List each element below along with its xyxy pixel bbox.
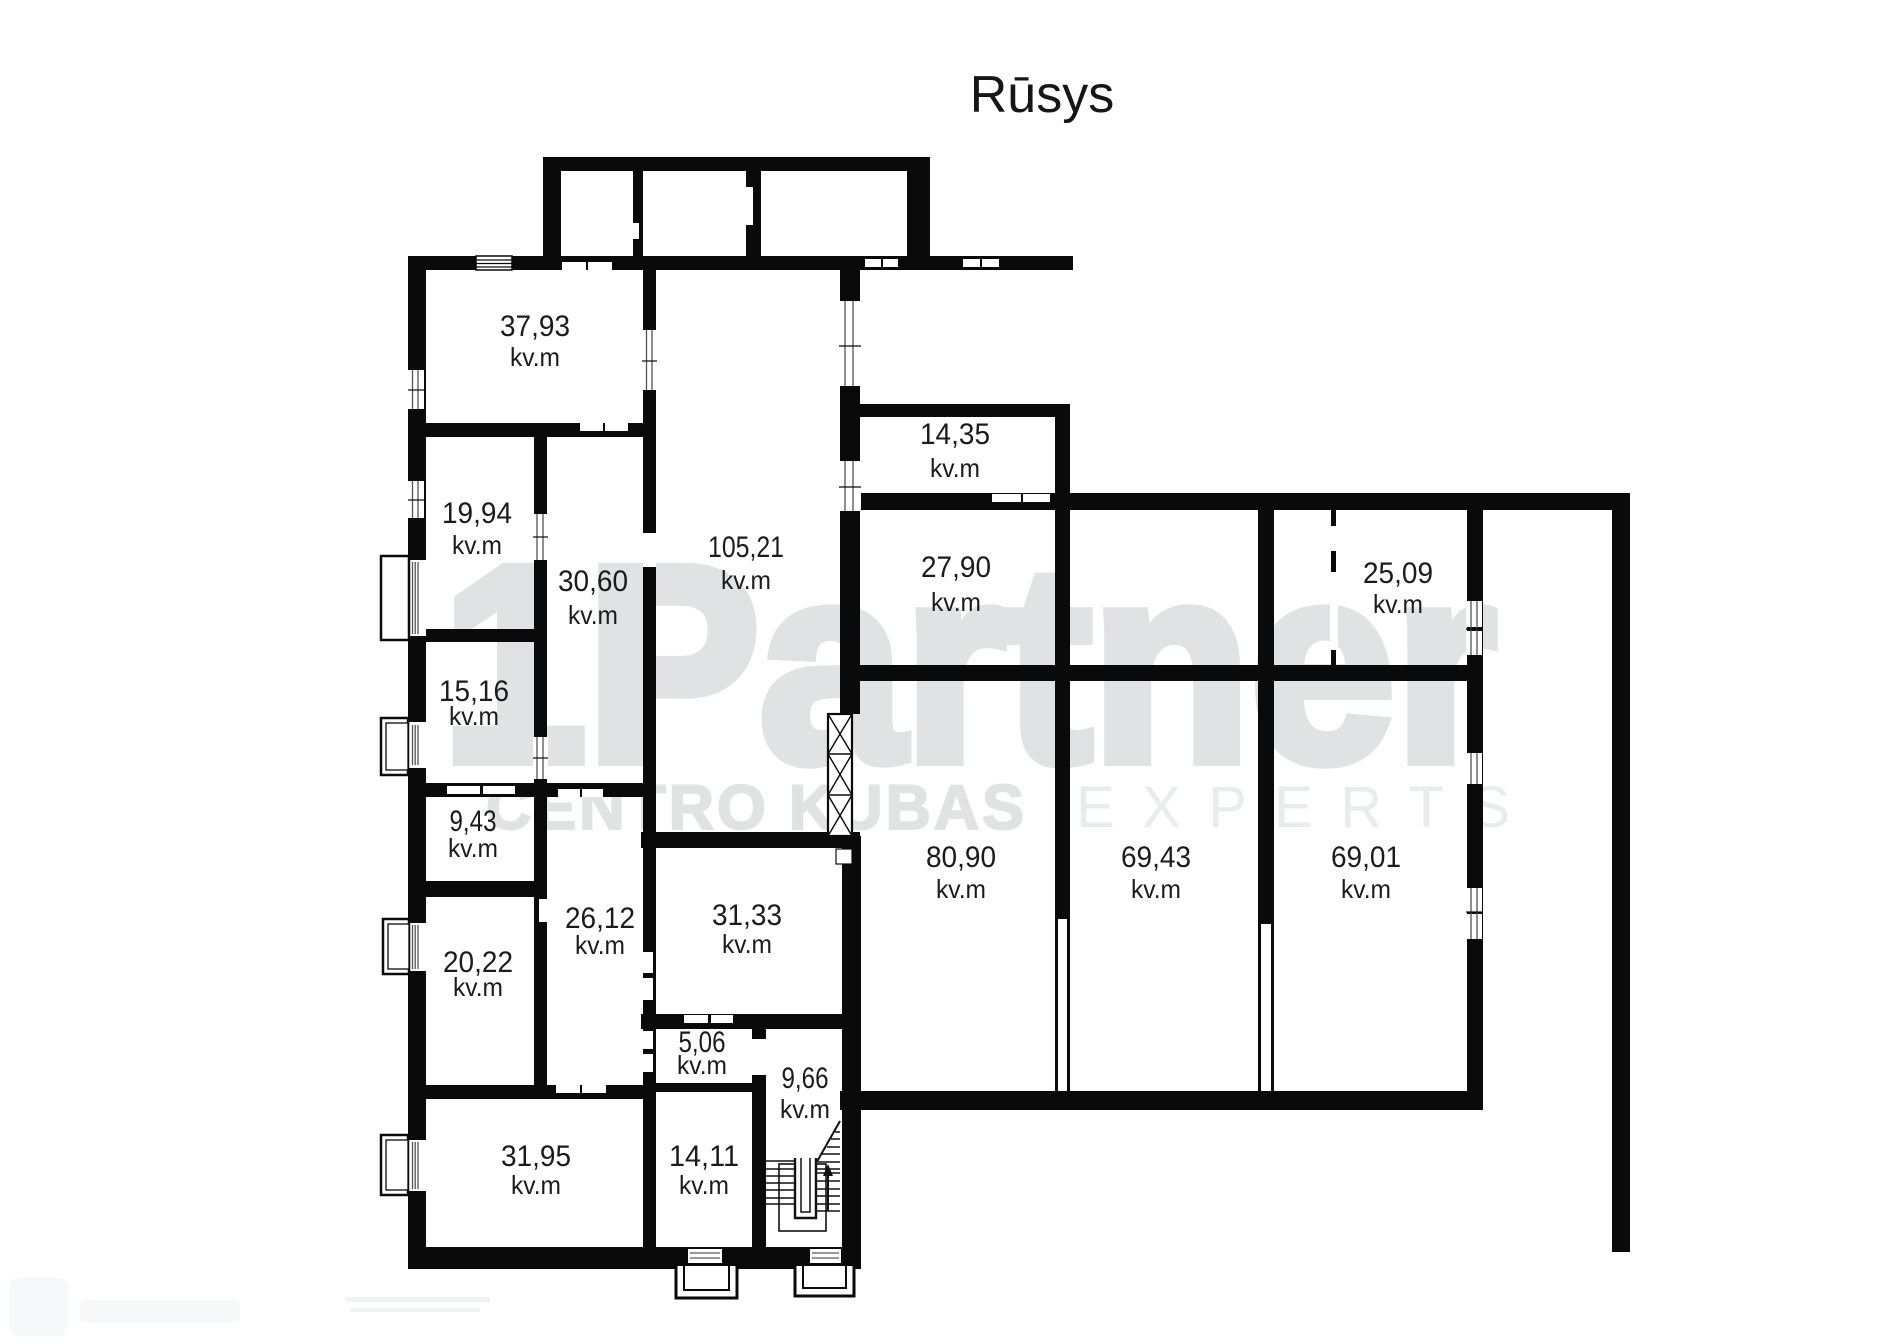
svg-text:27,90: 27,90 xyxy=(921,551,991,584)
svg-text:kv.m: kv.m xyxy=(721,565,771,595)
svg-text:kv.m: kv.m xyxy=(449,701,499,731)
svg-text:69,43: 69,43 xyxy=(1121,841,1191,874)
svg-text:31,95: 31,95 xyxy=(501,1140,571,1173)
svg-text:69,01: 69,01 xyxy=(1331,841,1401,874)
svg-text:kv.m: kv.m xyxy=(931,587,981,617)
svg-text:kv.m: kv.m xyxy=(930,453,980,483)
svg-text:kv.m: kv.m xyxy=(1341,874,1391,904)
svg-text:kv.m: kv.m xyxy=(511,1170,561,1200)
svg-text:kv.m: kv.m xyxy=(677,1050,727,1080)
svg-text:kv.m: kv.m xyxy=(722,929,772,959)
svg-text:80,90: 80,90 xyxy=(926,841,996,874)
svg-text:kv.m: kv.m xyxy=(448,833,498,863)
svg-text:kv.m: kv.m xyxy=(510,342,560,372)
svg-text:kv.m: kv.m xyxy=(575,930,625,960)
svg-text:kv.m: kv.m xyxy=(1131,874,1181,904)
svg-text:kv.m: kv.m xyxy=(452,530,502,560)
svg-text:19,94: 19,94 xyxy=(442,497,512,530)
svg-text:37,93: 37,93 xyxy=(500,310,570,343)
svg-text:30,60: 30,60 xyxy=(558,565,628,598)
svg-text:105,21: 105,21 xyxy=(708,531,784,564)
svg-text:14,35: 14,35 xyxy=(920,418,990,451)
svg-text:kv.m: kv.m xyxy=(780,1094,830,1124)
svg-text:14,11: 14,11 xyxy=(669,1140,739,1173)
svg-text:kv.m: kv.m xyxy=(453,972,503,1002)
svg-text:kv.m: kv.m xyxy=(568,600,618,630)
svg-text:31,33: 31,33 xyxy=(712,899,782,932)
svg-text:kv.m: kv.m xyxy=(679,1170,729,1200)
svg-text:Rūsys: Rūsys xyxy=(970,66,1114,124)
svg-text:kv.m: kv.m xyxy=(1373,589,1423,619)
svg-text:9,66: 9,66 xyxy=(782,1062,829,1095)
svg-text:25,09: 25,09 xyxy=(1363,557,1433,590)
svg-text:kv.m: kv.m xyxy=(936,874,986,904)
